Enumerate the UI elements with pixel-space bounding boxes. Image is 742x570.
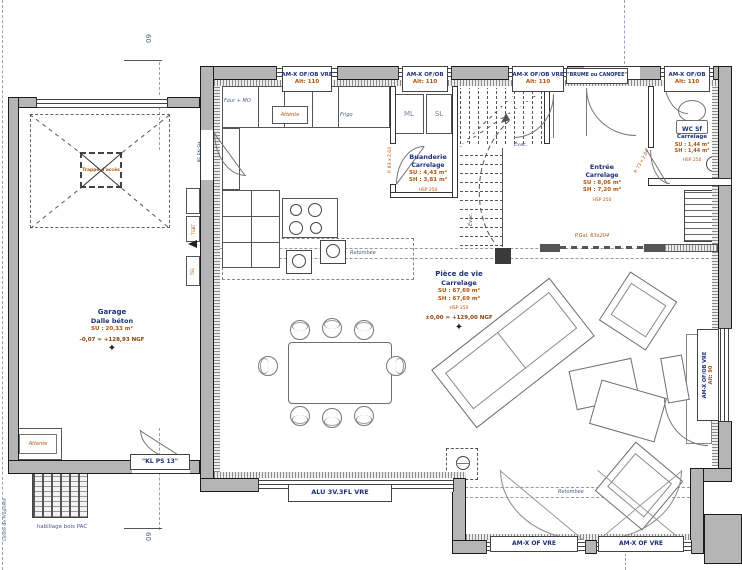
garage-sectional-door	[36, 97, 168, 108]
sink-bowl-icon	[292, 254, 306, 268]
property-line-label: Limite de Propriété	[3, 477, 13, 541]
bay-step-wall-east-v	[690, 468, 704, 554]
burner-icon	[289, 221, 303, 235]
dining-chair	[290, 320, 310, 340]
corner-wall-block	[704, 514, 742, 564]
garage-wall-left	[8, 97, 19, 474]
counter-divider	[338, 86, 339, 128]
buanderie-door-label: P. 83 x 2,04	[388, 130, 396, 190]
burner-icon	[308, 203, 322, 217]
dining-chair	[290, 406, 310, 426]
dim-marker-bottom: 60	[140, 532, 152, 552]
bay-window-label-2: AM-X OF VRE	[598, 536, 684, 552]
alu-bay-label: ALU 3V.3FL VRE	[288, 484, 392, 502]
washer-box: ML	[394, 94, 424, 134]
island-divider	[222, 216, 280, 217]
coffee-table-2	[589, 380, 667, 443]
burner-icon	[290, 204, 302, 216]
wc-label: WC Sf Carrelage SU : 1,44 m² SH : 1,44 m…	[664, 126, 720, 164]
entree-label: Entrée Carrelage SU : 8,06 m² SH : 7,20 …	[574, 163, 630, 204]
dining-chair	[322, 318, 342, 338]
heat-pump-unit	[32, 472, 88, 518]
window-label-1: AM-X OF/OB VRE Alt: 110	[282, 66, 332, 92]
dining-table	[288, 342, 392, 404]
evac-label: Évac.	[514, 142, 528, 148]
right-window-opening	[718, 328, 732, 422]
garage-appliance-inner: Attente	[19, 434, 57, 454]
dryer-box: SL	[426, 94, 452, 134]
evac-label-2: Évac.	[468, 186, 476, 226]
structural-post	[495, 248, 511, 264]
living-label: Pièce de vie Carrelage SU : 67,69 m² SH …	[404, 270, 514, 333]
service-door-label: PE EN.SH	[198, 122, 206, 182]
tgbt-panel: TGBT	[186, 216, 200, 242]
counter-divider	[312, 86, 313, 128]
dining-chair	[258, 356, 278, 376]
dining-chair	[354, 320, 374, 340]
tel-panel: TEL	[186, 256, 200, 286]
garage-attente-label: Attente	[29, 441, 48, 447]
pocket-door-panel	[560, 246, 644, 249]
level-marker-icon: ✦	[404, 323, 514, 333]
dining-chair	[322, 408, 342, 428]
kitchen-attente-box: Attente	[272, 106, 308, 124]
island-divider	[222, 242, 280, 243]
armchair-top	[599, 271, 678, 350]
flue-cross-line	[456, 463, 470, 464]
entry-door-label: "BRUME ou CANOPEE"	[566, 68, 628, 84]
sink-bowl-icon	[326, 244, 340, 258]
island-divider	[251, 190, 252, 268]
level-marker-icon: ✦	[62, 344, 162, 354]
entree-low-wall	[664, 244, 718, 252]
dining-chair	[354, 406, 374, 426]
pocket-door-jamb	[644, 244, 664, 252]
beam-label-2: Retombée	[558, 489, 584, 495]
buanderie-label: Buanderie Carrelage SU : 4,43 m² SH : 3,…	[400, 153, 456, 194]
dim-tick-bottom	[124, 528, 162, 529]
panel-arrow-icon	[188, 240, 197, 248]
bay-window-label-1: AM-X OF VRE	[490, 536, 578, 552]
window-label-4: AM-X OF/OB Alt: 110	[664, 66, 710, 92]
garage-ped-door-label: "KL PS 13"	[130, 454, 190, 470]
burner-icon	[310, 222, 322, 234]
heat-pump-caption: habillage bois PAC	[24, 524, 100, 532]
stair-door-leaf	[553, 94, 554, 138]
fridge-label: Frigo	[340, 112, 353, 118]
beam-label: Retombée	[350, 250, 376, 256]
entry-door-arc	[586, 88, 636, 136]
oven-label: Four + MO	[224, 98, 260, 114]
armchair-seat	[611, 283, 667, 338]
axis-line-entry	[624, 0, 625, 64]
floor-plan: 60 60 Limite de Propriété "KL PS 13" Tra…	[0, 0, 742, 570]
window-label-2: AM-X OF/OB Alt: 110	[402, 66, 448, 92]
dining-chair	[386, 356, 406, 376]
pocket-door-label: P.Gal. 63x204	[556, 233, 628, 242]
entry-door-leaf	[586, 88, 587, 136]
wall-panel-box	[186, 188, 200, 214]
dim-tick-top	[124, 60, 162, 61]
window-label-3: AM-X OF/OB VRE Alt: 110	[512, 66, 564, 92]
right-window-label: AM-X OF/OB VRE Alt: 90	[697, 329, 719, 421]
dim-marker-top: 60	[140, 34, 152, 54]
pocket-door-jamb	[540, 244, 560, 252]
garage-label: Garage Dalle béton SU : 20,33 m² -0,07 =…	[62, 308, 162, 354]
